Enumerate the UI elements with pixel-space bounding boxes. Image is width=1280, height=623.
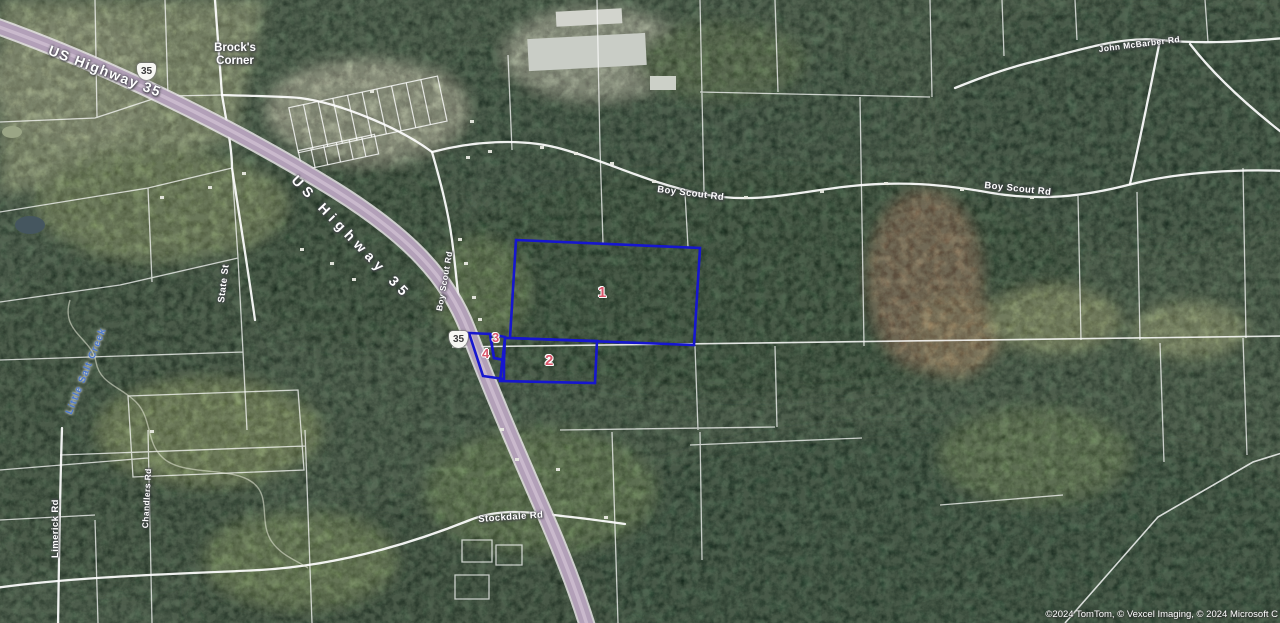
map-canvas: [0, 0, 1280, 623]
map-attribution: ©2024 TomTom, © Vexcel Imaging, © 2024 M…: [1045, 609, 1280, 620]
satellite-parcel-map[interactable]: US Highway 35 US Highway 35 35 35 Brock'…: [0, 0, 1280, 623]
forest-texture-light: [0, 0, 1280, 623]
